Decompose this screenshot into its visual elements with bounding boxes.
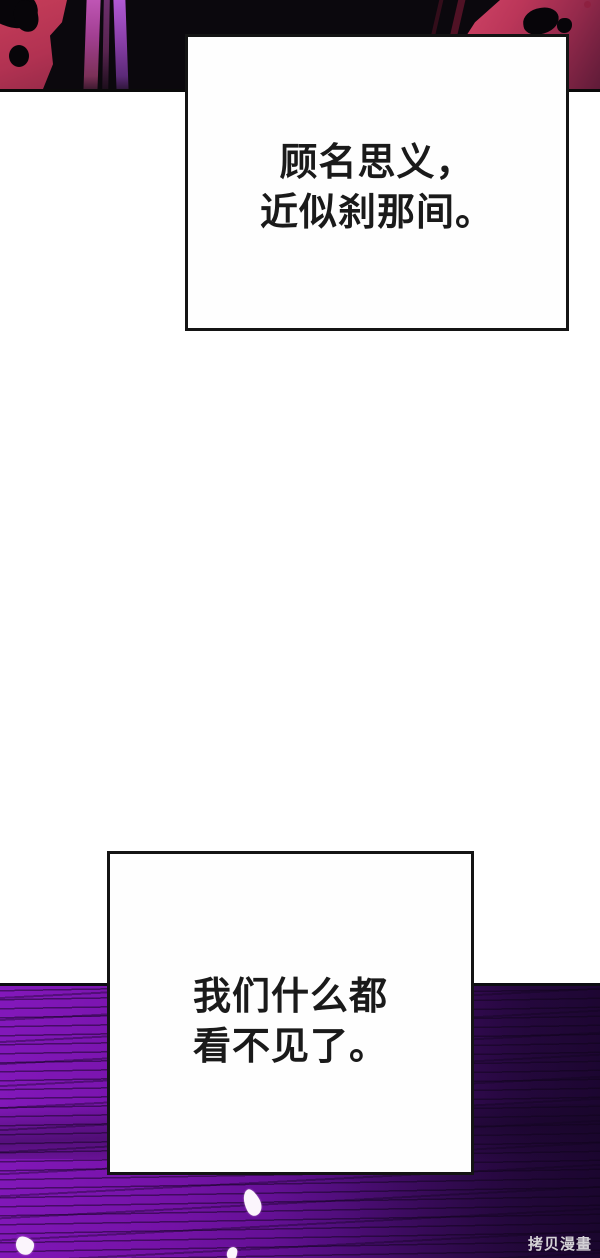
comic-page: 顾名思义， 近似刹那间。 拷贝漫畫 我们什么都 看不见了。 [0, 0, 600, 1258]
dialogue-line: 顾名思义， [279, 138, 474, 188]
ink-blob-dot [9, 45, 29, 67]
speech-box-first: 顾名思义， 近似刹那间。 [185, 34, 569, 331]
speech-box-second: 我们什么都 看不见了。 [107, 851, 474, 1175]
watermark: 拷贝漫畫 [528, 1233, 592, 1254]
dialogue-line: 看不见了。 [193, 1022, 388, 1072]
purple-speed-streak [113, 0, 128, 92]
dialogue-line: 我们什么都 [193, 972, 388, 1022]
purple-speed-streak [83, 0, 100, 92]
purple-speed-streak [102, 0, 110, 92]
dialogue-line: 近似刹那间。 [260, 188, 494, 238]
red-dot [584, 1, 591, 8]
